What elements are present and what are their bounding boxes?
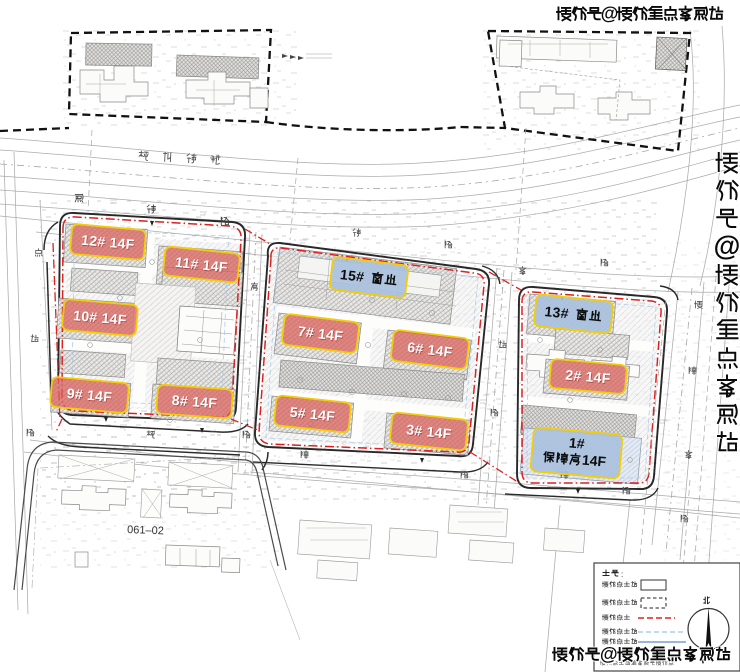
svg-text:@: @ [600, 644, 618, 664]
svg-text:061–02: 061–02 [127, 524, 164, 537]
svg-text:15#: 15# [339, 266, 365, 285]
svg-text:1#: 1# [568, 434, 585, 451]
svg-text::: : [621, 570, 623, 579]
svg-text:@: @ [601, 3, 619, 23]
svg-text:13#: 13# [544, 303, 570, 321]
svg-text:8# 14F: 8# 14F [171, 392, 218, 411]
svg-text:@: @ [714, 230, 740, 261]
svg-text:14F: 14F [581, 452, 607, 470]
